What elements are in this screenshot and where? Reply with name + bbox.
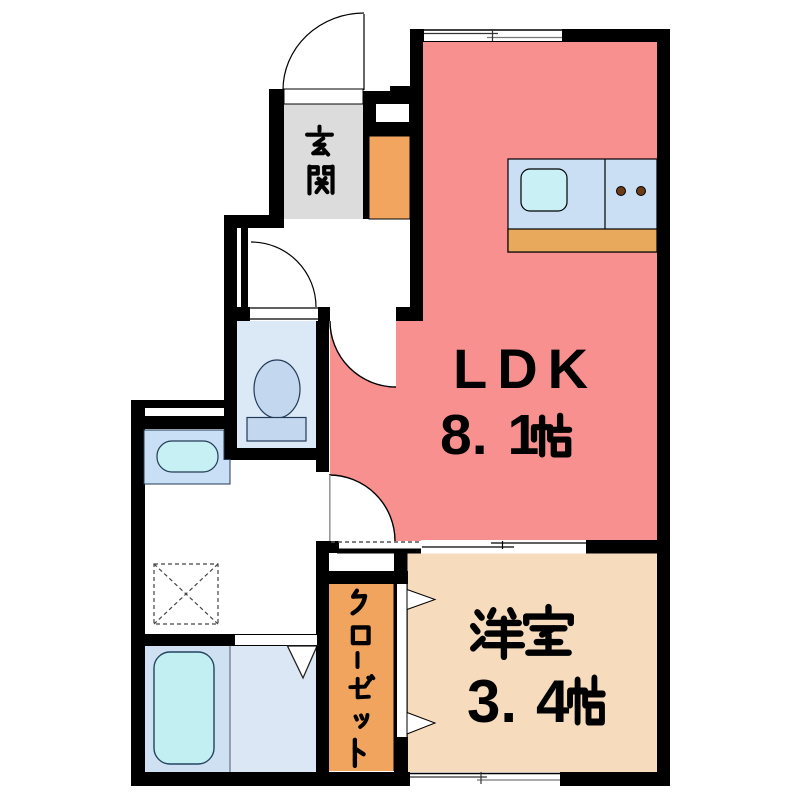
svg-text:LDK: LDK [453,337,598,400]
